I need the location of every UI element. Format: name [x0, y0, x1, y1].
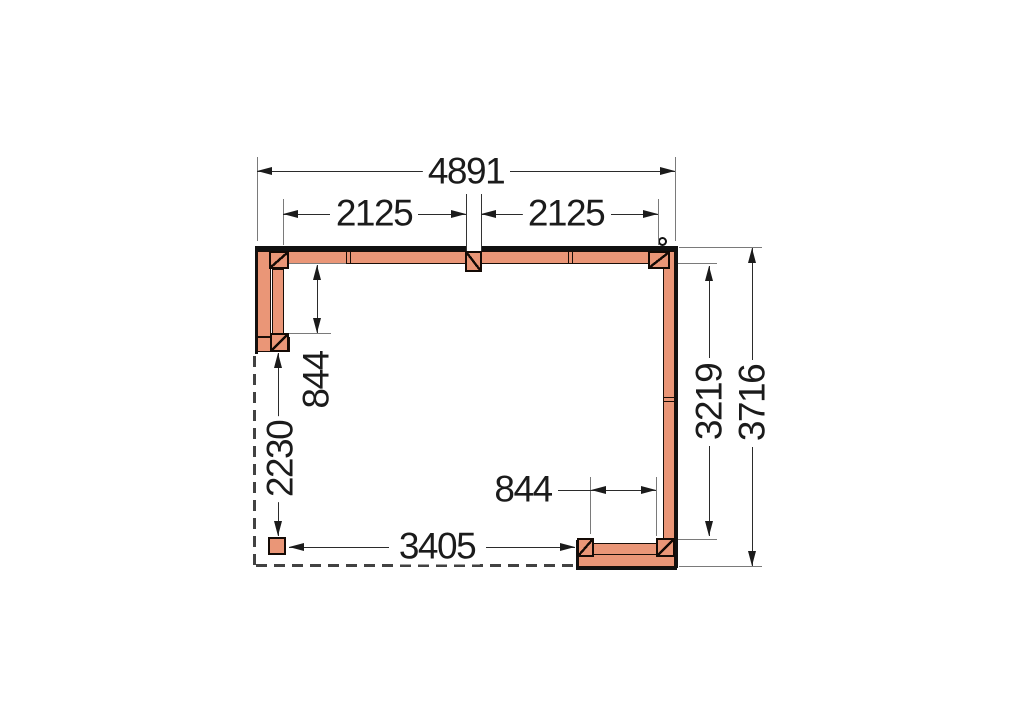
arrow-2230-bottom [274, 521, 282, 536]
top-beam-joint-left2 [350, 252, 351, 264]
ext-bay-left [283, 199, 284, 245]
ext-center-post-right [481, 194, 482, 251]
dim-line-3716-b [752, 447, 753, 566]
right-wall-joint2 [664, 401, 674, 402]
post-free-standing [268, 537, 286, 555]
right-wall-joint [664, 397, 674, 398]
ext-overall-right [675, 157, 676, 241]
post-bottom-beam-end [577, 538, 594, 557]
arrow-844-left-top [313, 265, 321, 280]
dim-bottom-right-return-label: 844 [489, 471, 556, 508]
dim-overall-depth-label: 3716 [734, 360, 771, 446]
arrow-3716-top [748, 248, 756, 263]
arrow-overall-right [660, 167, 675, 175]
right-wall-beam [663, 251, 675, 541]
arrow-bay-left-l [283, 210, 298, 218]
arrow-bay-left-r [451, 210, 466, 218]
dim-left-open-span-label: 2230 [262, 416, 299, 502]
ext-3219-top [678, 263, 717, 264]
post-top-center [465, 251, 482, 272]
post-left-wall-end [270, 333, 289, 352]
ext-3219-bottom [678, 539, 717, 540]
post-top-left [269, 251, 289, 269]
ext-844-left-top [289, 263, 346, 264]
dim-line-3405-a [289, 547, 389, 548]
top-beam-joint-right2 [572, 252, 573, 264]
post-top-right [648, 251, 670, 269]
arrow-844-right-r [641, 486, 656, 494]
top-beam-joint-right [568, 252, 569, 264]
dim-line-overall-width-a [257, 171, 424, 172]
arrow-bay-right-l [481, 210, 496, 218]
ext-bay-right [658, 199, 659, 245]
dim-overall-width-label: 4891 [423, 153, 509, 190]
left-wall-inner-beam [272, 269, 284, 335]
arrow-844-right-l [591, 486, 606, 494]
top-beam-joint-left [346, 252, 347, 264]
bottom-right-inner-beam [592, 543, 660, 555]
floor-plan-canvas: 4891 2125 2125 844 2230 3405 844 3219 37… [0, 0, 1024, 724]
ext-844-left-bottom [289, 333, 331, 334]
open-side-left-dashed [253, 356, 256, 568]
corner-circle-marker [658, 237, 667, 246]
arrow-2230-top [274, 353, 282, 368]
arrow-3405-right [560, 543, 575, 551]
arrow-3219-bottom [705, 521, 713, 536]
dim-bay-left-label: 2125 [331, 195, 417, 232]
arrow-3405-left [289, 543, 304, 551]
dim-line-3716-a [752, 248, 753, 360]
arrow-844-left-bottom [313, 318, 321, 333]
arrow-overall-left [257, 167, 272, 175]
dim-right-inner-depth-label: 3219 [691, 359, 728, 445]
post-bottom-right [656, 538, 675, 557]
arrow-3716-bottom [748, 551, 756, 566]
dim-bay-right-label: 2125 [523, 195, 609, 232]
arrow-bay-right-r [643, 210, 658, 218]
arrow-3219-top [705, 266, 713, 281]
ext-center-post-left [466, 194, 467, 251]
dim-line-overall-width-b [510, 171, 675, 172]
dim-bottom-span-label: 3405 [394, 528, 480, 565]
ext-3716-bottom [679, 566, 762, 567]
dim-left-return-label: 844 [298, 346, 335, 413]
ext-844-right-right [656, 477, 657, 536]
